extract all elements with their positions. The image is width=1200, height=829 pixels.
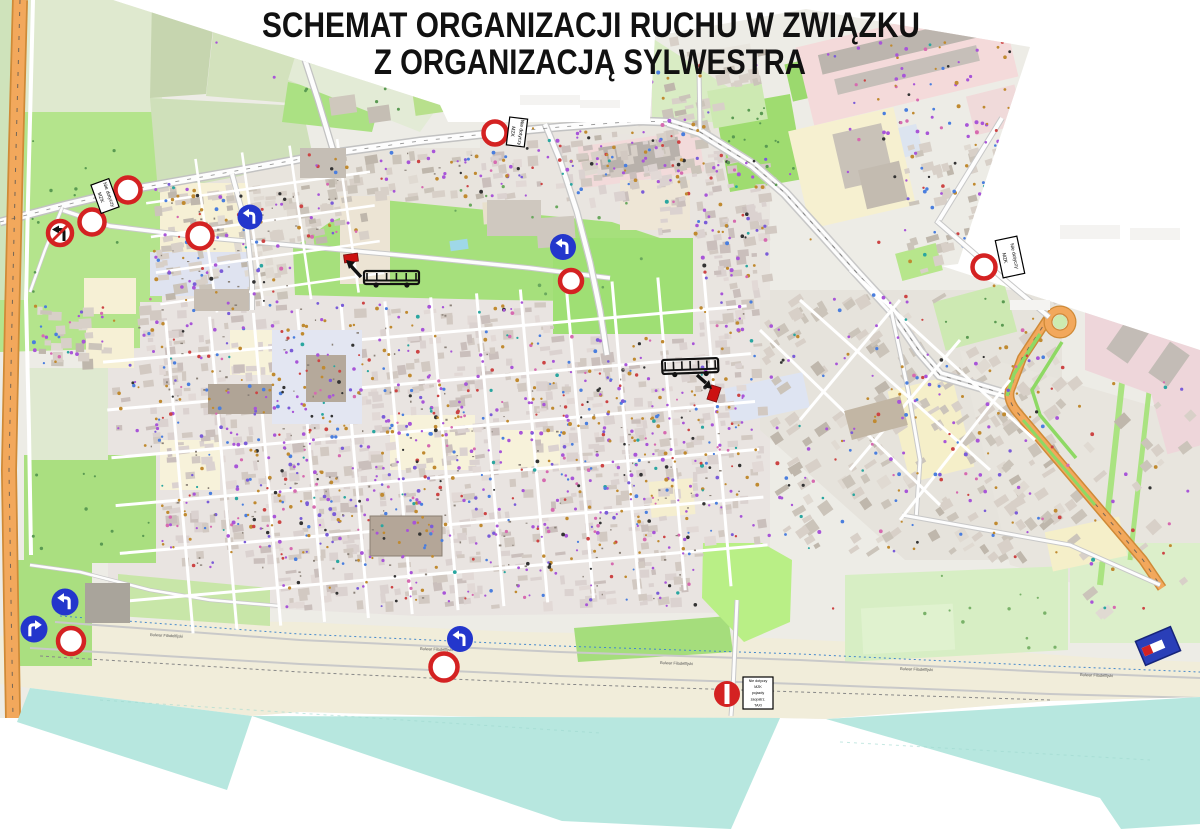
svg-text:zaopatrz.: zaopatrz. xyxy=(751,697,766,701)
svg-text:MZK: MZK xyxy=(754,685,762,689)
svg-text:SCHEMAT ORGANIZACJI RUCHU W ZW: SCHEMAT ORGANIZACJI RUCHU W ZWIĄZKU xyxy=(262,6,920,45)
svg-text:Z ORGANIZACJĄ SYLWESTRA: Z ORGANIZACJĄ SYLWESTRA xyxy=(374,43,806,82)
svg-text:pojazdy: pojazdy xyxy=(752,691,765,695)
svg-text:TAXI: TAXI xyxy=(754,703,762,707)
svg-text:Nie dotyczy: Nie dotyczy xyxy=(749,679,768,683)
